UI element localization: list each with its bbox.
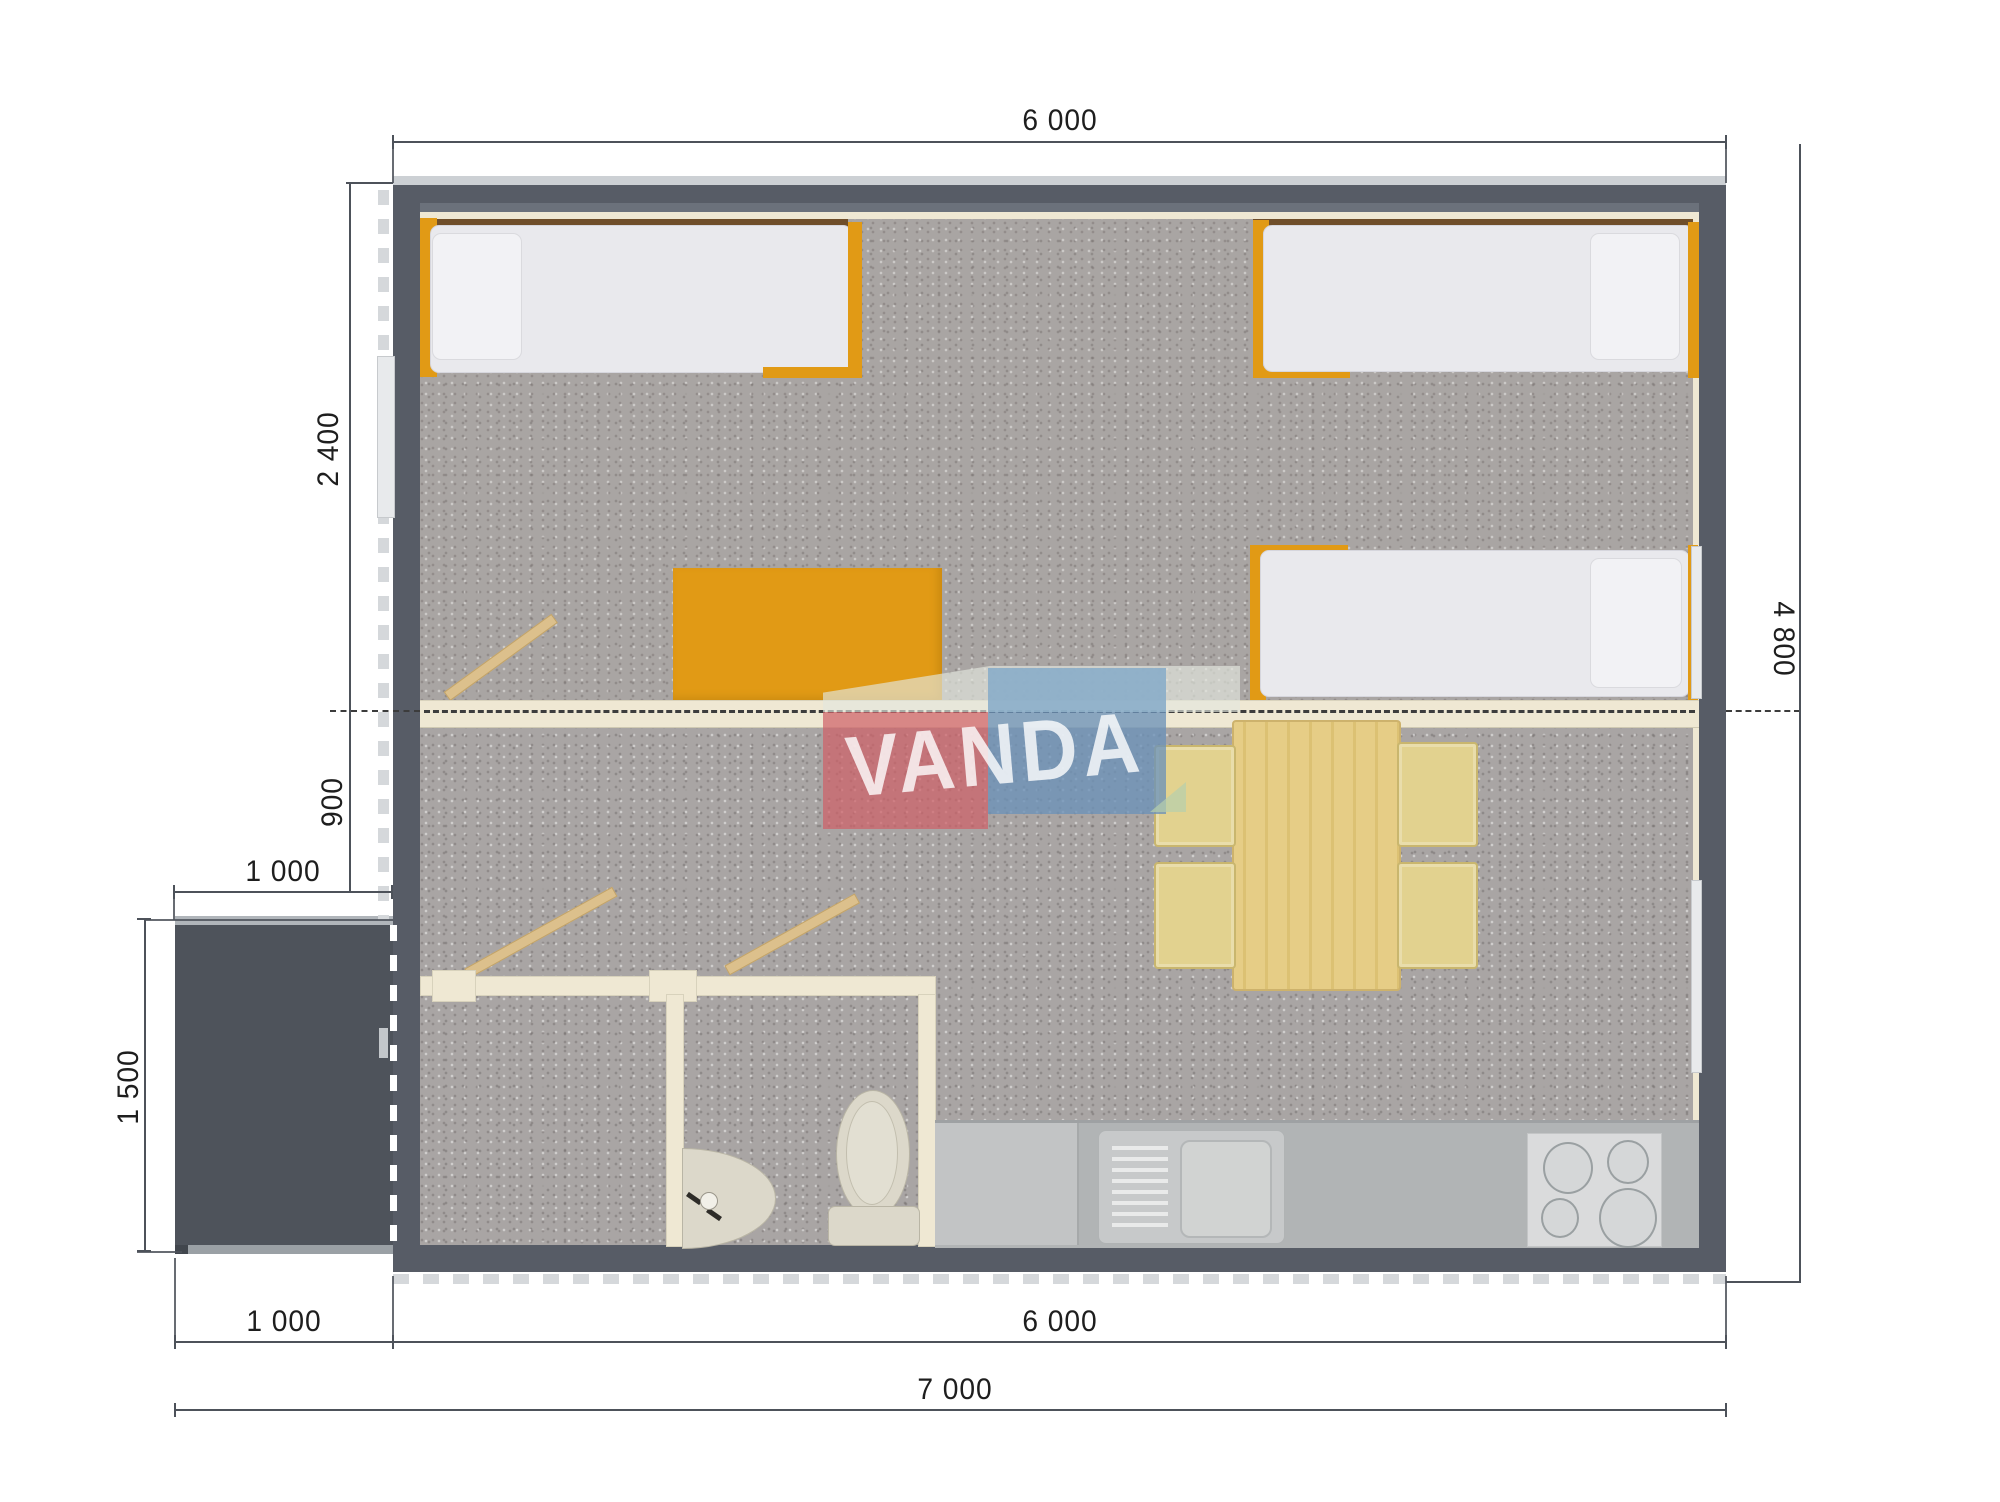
dim-label-right-height: 4 800 <box>1766 564 1800 714</box>
dim-label-top-width: 6 000 <box>966 104 1154 138</box>
window-right-wall-bedroom <box>1691 546 1702 699</box>
dim-tick <box>1725 1403 1727 1417</box>
dim-label-hall-depth: 900 <box>316 746 350 859</box>
wall-bottom <box>393 1245 1726 1272</box>
bed-frame-rail <box>848 222 862 378</box>
dim-extension <box>137 1251 182 1253</box>
dim-extension <box>1725 143 1727 183</box>
bed-middle-right <box>1250 545 1698 700</box>
dim-tick <box>174 1403 176 1417</box>
sink-drain <box>700 1192 718 1210</box>
wall-right <box>1699 212 1726 1272</box>
dim-label-bedroom-depth: 2 400 <box>312 374 346 524</box>
dim-label-bottom-building: 6 000 <box>966 1305 1154 1339</box>
left-wall-sill-dashes <box>378 190 389 920</box>
toilet-seat <box>846 1101 898 1205</box>
entry-porch-slab <box>175 925 393 1245</box>
window-right-wall-living <box>1691 880 1702 1073</box>
burner-icon <box>1543 1142 1593 1194</box>
toilet-tank <box>828 1206 920 1246</box>
window-left-wall <box>377 356 395 518</box>
bottom-sill-dashes <box>393 1274 1726 1284</box>
dim-label-bottom-porch: 1 000 <box>218 1305 350 1339</box>
dim-label-bottom-total: 7 000 <box>861 1373 1049 1407</box>
kitchen-cabinet-unit <box>935 1123 1079 1245</box>
chair-bottom-left <box>1154 862 1236 969</box>
dim-tick <box>391 885 393 899</box>
toilet <box>836 1090 910 1218</box>
dim-tick <box>392 1335 394 1349</box>
bed-pillow <box>1590 233 1680 360</box>
chair-top-right <box>1397 742 1478 847</box>
wall-left <box>393 212 420 1272</box>
dim-line-bottom-total <box>175 1409 1726 1411</box>
dim-tick <box>137 918 151 920</box>
bed-top-left <box>420 218 863 379</box>
dim-tick <box>1725 1335 1727 1349</box>
bed-frame-rail <box>1253 222 1263 378</box>
dim-extension <box>145 919 393 921</box>
dim-tick <box>346 182 393 184</box>
kitchen-sink-basin <box>1180 1140 1272 1238</box>
bathroom-wall-vertical-right <box>918 994 936 1247</box>
bed-frame-rail <box>1250 545 1260 700</box>
burner-icon <box>1607 1140 1649 1184</box>
dim-line-bottom-chain <box>175 1341 1726 1343</box>
partition-extension-left <box>330 710 420 712</box>
dining-table <box>1232 720 1401 991</box>
bed-frame-foot-rail <box>763 367 851 378</box>
entry-door <box>390 925 397 1245</box>
dim-label-porch-width-top: 1 000 <box>217 855 349 889</box>
roof-edge-strip <box>393 176 1726 185</box>
dim-line-porch-width <box>173 891 393 893</box>
dim-label-porch-depth: 1 500 <box>112 1012 146 1162</box>
drainboard-icon <box>1112 1146 1168 1228</box>
dim-extension <box>392 143 394 183</box>
burner-icon <box>1541 1198 1579 1238</box>
dim-extension <box>173 893 175 920</box>
chair-bottom-right <box>1397 862 1478 969</box>
bed-top-right <box>1253 220 1699 380</box>
burner-icon <box>1599 1188 1657 1248</box>
bathroom-door-jamb <box>432 970 476 1002</box>
door-handle-icon <box>379 1028 388 1058</box>
bed-pillow <box>432 233 522 360</box>
dim-tick <box>174 1335 176 1349</box>
wall-top-inner-band <box>420 203 1699 212</box>
porch-bottom-edge <box>175 1245 393 1254</box>
dim-line-top <box>393 141 1726 143</box>
dim-tick <box>1726 1281 1801 1283</box>
bed-pillow <box>1590 558 1682 688</box>
bed-frame-rail <box>1688 222 1699 378</box>
floor-plan-canvas: VANDA 6 000 2 400 900 1 000 1 500 4 800 … <box>0 0 2000 1502</box>
